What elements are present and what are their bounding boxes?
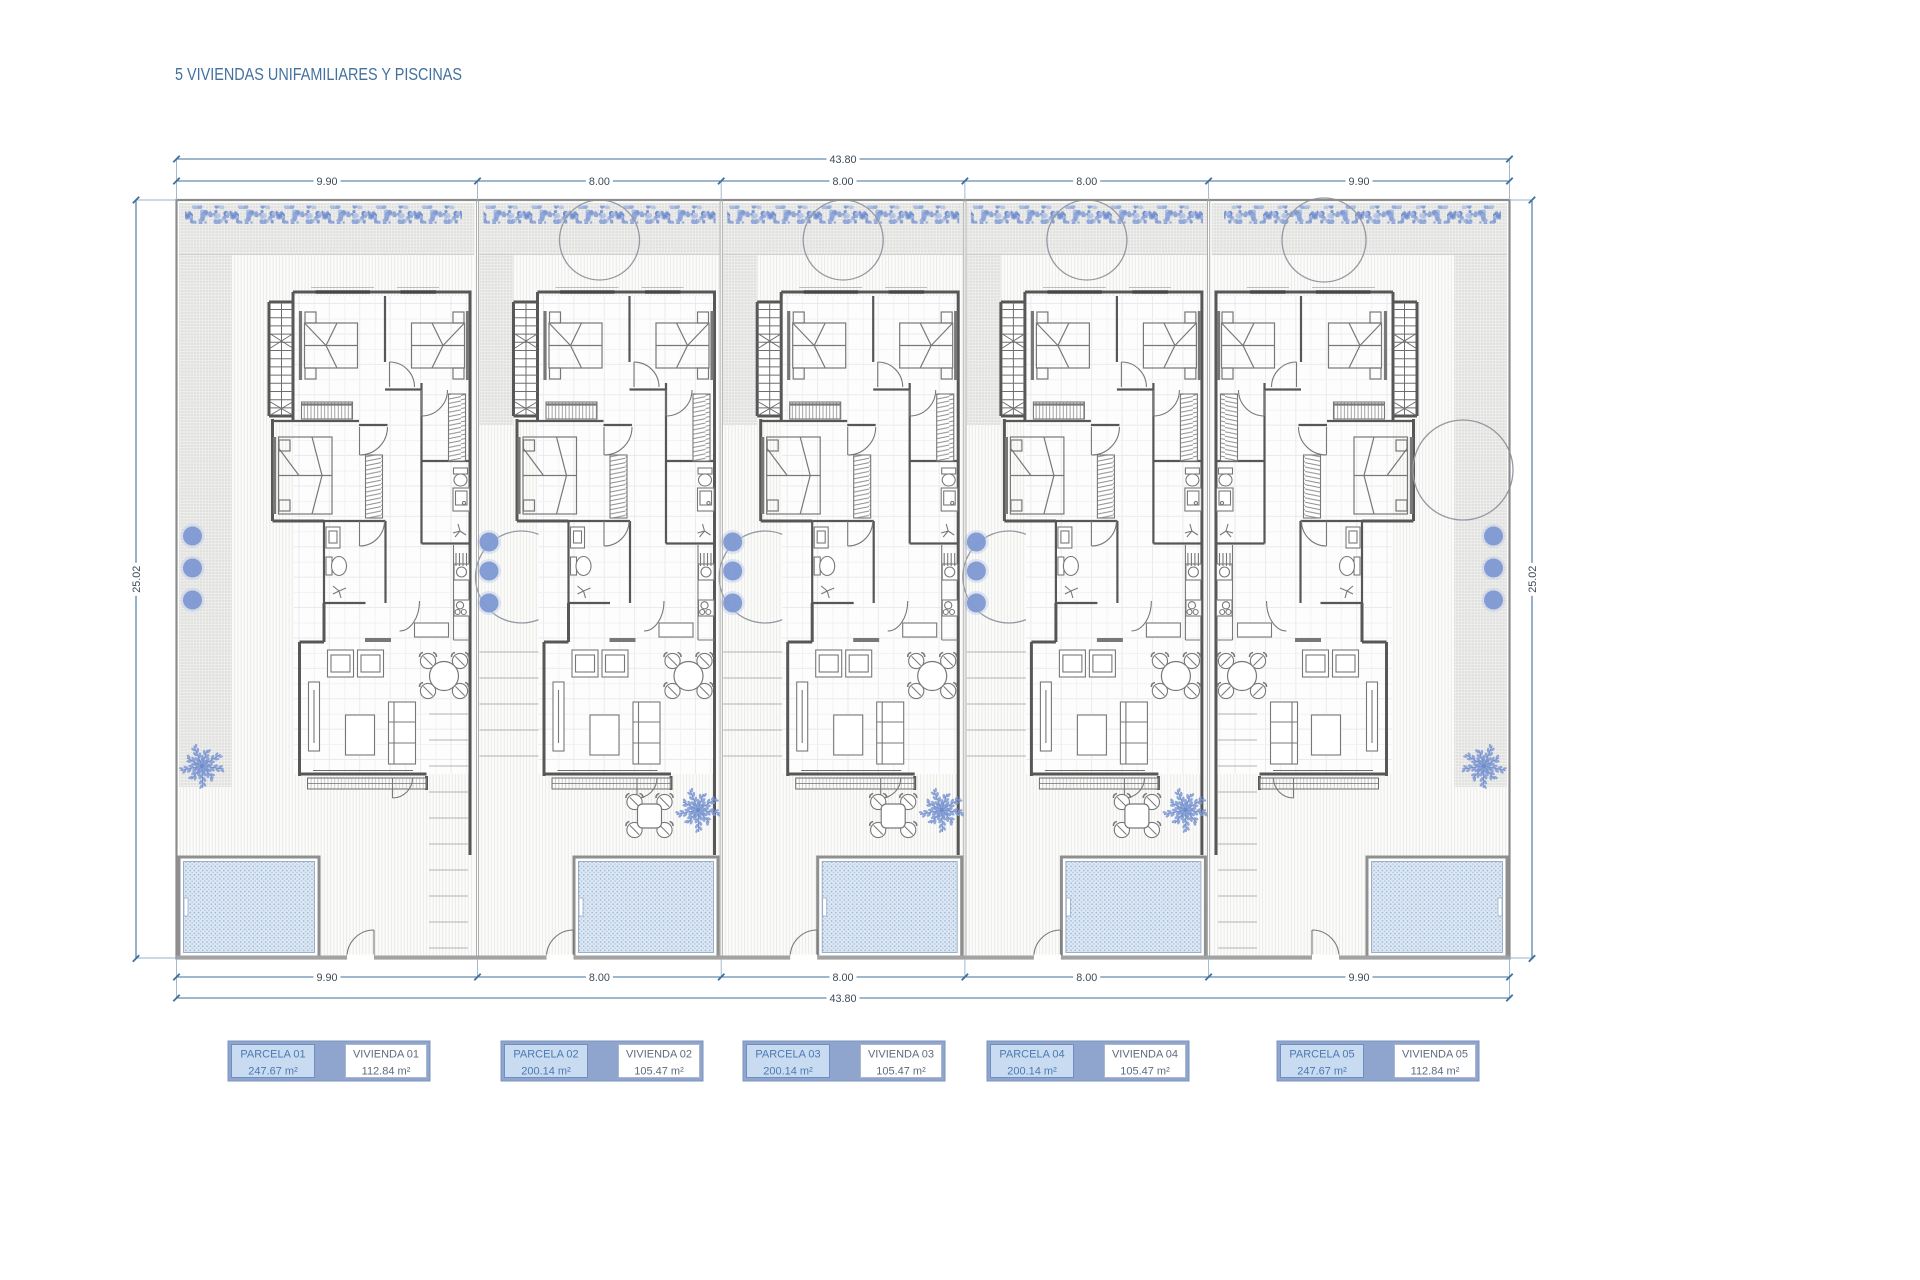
svg-text:PARCELA 04: PARCELA 04 xyxy=(999,1049,1064,1061)
svg-text:8.00: 8.00 xyxy=(1076,972,1097,984)
svg-text:105.47 m²: 105.47 m² xyxy=(1120,1066,1170,1078)
svg-text:VIVIENDA 05: VIVIENDA 05 xyxy=(1402,1049,1468,1061)
svg-text:9.90: 9.90 xyxy=(316,972,337,984)
svg-text:112.84 m²: 112.84 m² xyxy=(1411,1066,1460,1078)
svg-text:VIVIENDA 01: VIVIENDA 01 xyxy=(353,1049,419,1061)
svg-text:105.47 m²: 105.47 m² xyxy=(634,1066,684,1078)
svg-text:9.90: 9.90 xyxy=(1348,972,1369,984)
svg-text:VIVIENDA 04: VIVIENDA 04 xyxy=(1112,1049,1178,1061)
svg-text:25.02: 25.02 xyxy=(131,566,143,593)
svg-text:VIVIENDA 03: VIVIENDA 03 xyxy=(868,1049,934,1061)
svg-text:9.90: 9.90 xyxy=(1348,176,1369,188)
svg-text:200.14 m²: 200.14 m² xyxy=(763,1066,813,1078)
svg-text:8.00: 8.00 xyxy=(832,176,853,188)
svg-text:8.00: 8.00 xyxy=(832,972,853,984)
svg-text:5 VIVIENDAS UNIFAMILIARES Y PI: 5 VIVIENDAS UNIFAMILIARES Y PISCINAS xyxy=(175,64,462,84)
svg-text:247.67 m²: 247.67 m² xyxy=(1297,1066,1347,1078)
svg-text:9.90: 9.90 xyxy=(316,176,337,188)
svg-text:247.67 m²: 247.67 m² xyxy=(248,1066,298,1078)
svg-text:PARCELA 05: PARCELA 05 xyxy=(1289,1049,1354,1061)
svg-text:43.80: 43.80 xyxy=(829,154,856,166)
svg-text:PARCELA 02: PARCELA 02 xyxy=(513,1049,578,1061)
svg-text:8.00: 8.00 xyxy=(589,176,610,188)
svg-text:8.00: 8.00 xyxy=(589,972,610,984)
svg-text:25.02: 25.02 xyxy=(1527,566,1539,593)
svg-text:PARCELA 01: PARCELA 01 xyxy=(240,1049,305,1061)
svg-text:112.84 m²: 112.84 m² xyxy=(362,1066,411,1078)
svg-text:43.80: 43.80 xyxy=(829,993,856,1005)
svg-text:PARCELA 03: PARCELA 03 xyxy=(755,1049,820,1061)
svg-text:200.14 m²: 200.14 m² xyxy=(1007,1066,1057,1078)
svg-text:105.47 m²: 105.47 m² xyxy=(876,1066,926,1078)
svg-text:8.00: 8.00 xyxy=(1076,176,1097,188)
svg-text:VIVIENDA 02: VIVIENDA 02 xyxy=(626,1049,692,1061)
svg-text:200.14 m²: 200.14 m² xyxy=(521,1066,571,1078)
